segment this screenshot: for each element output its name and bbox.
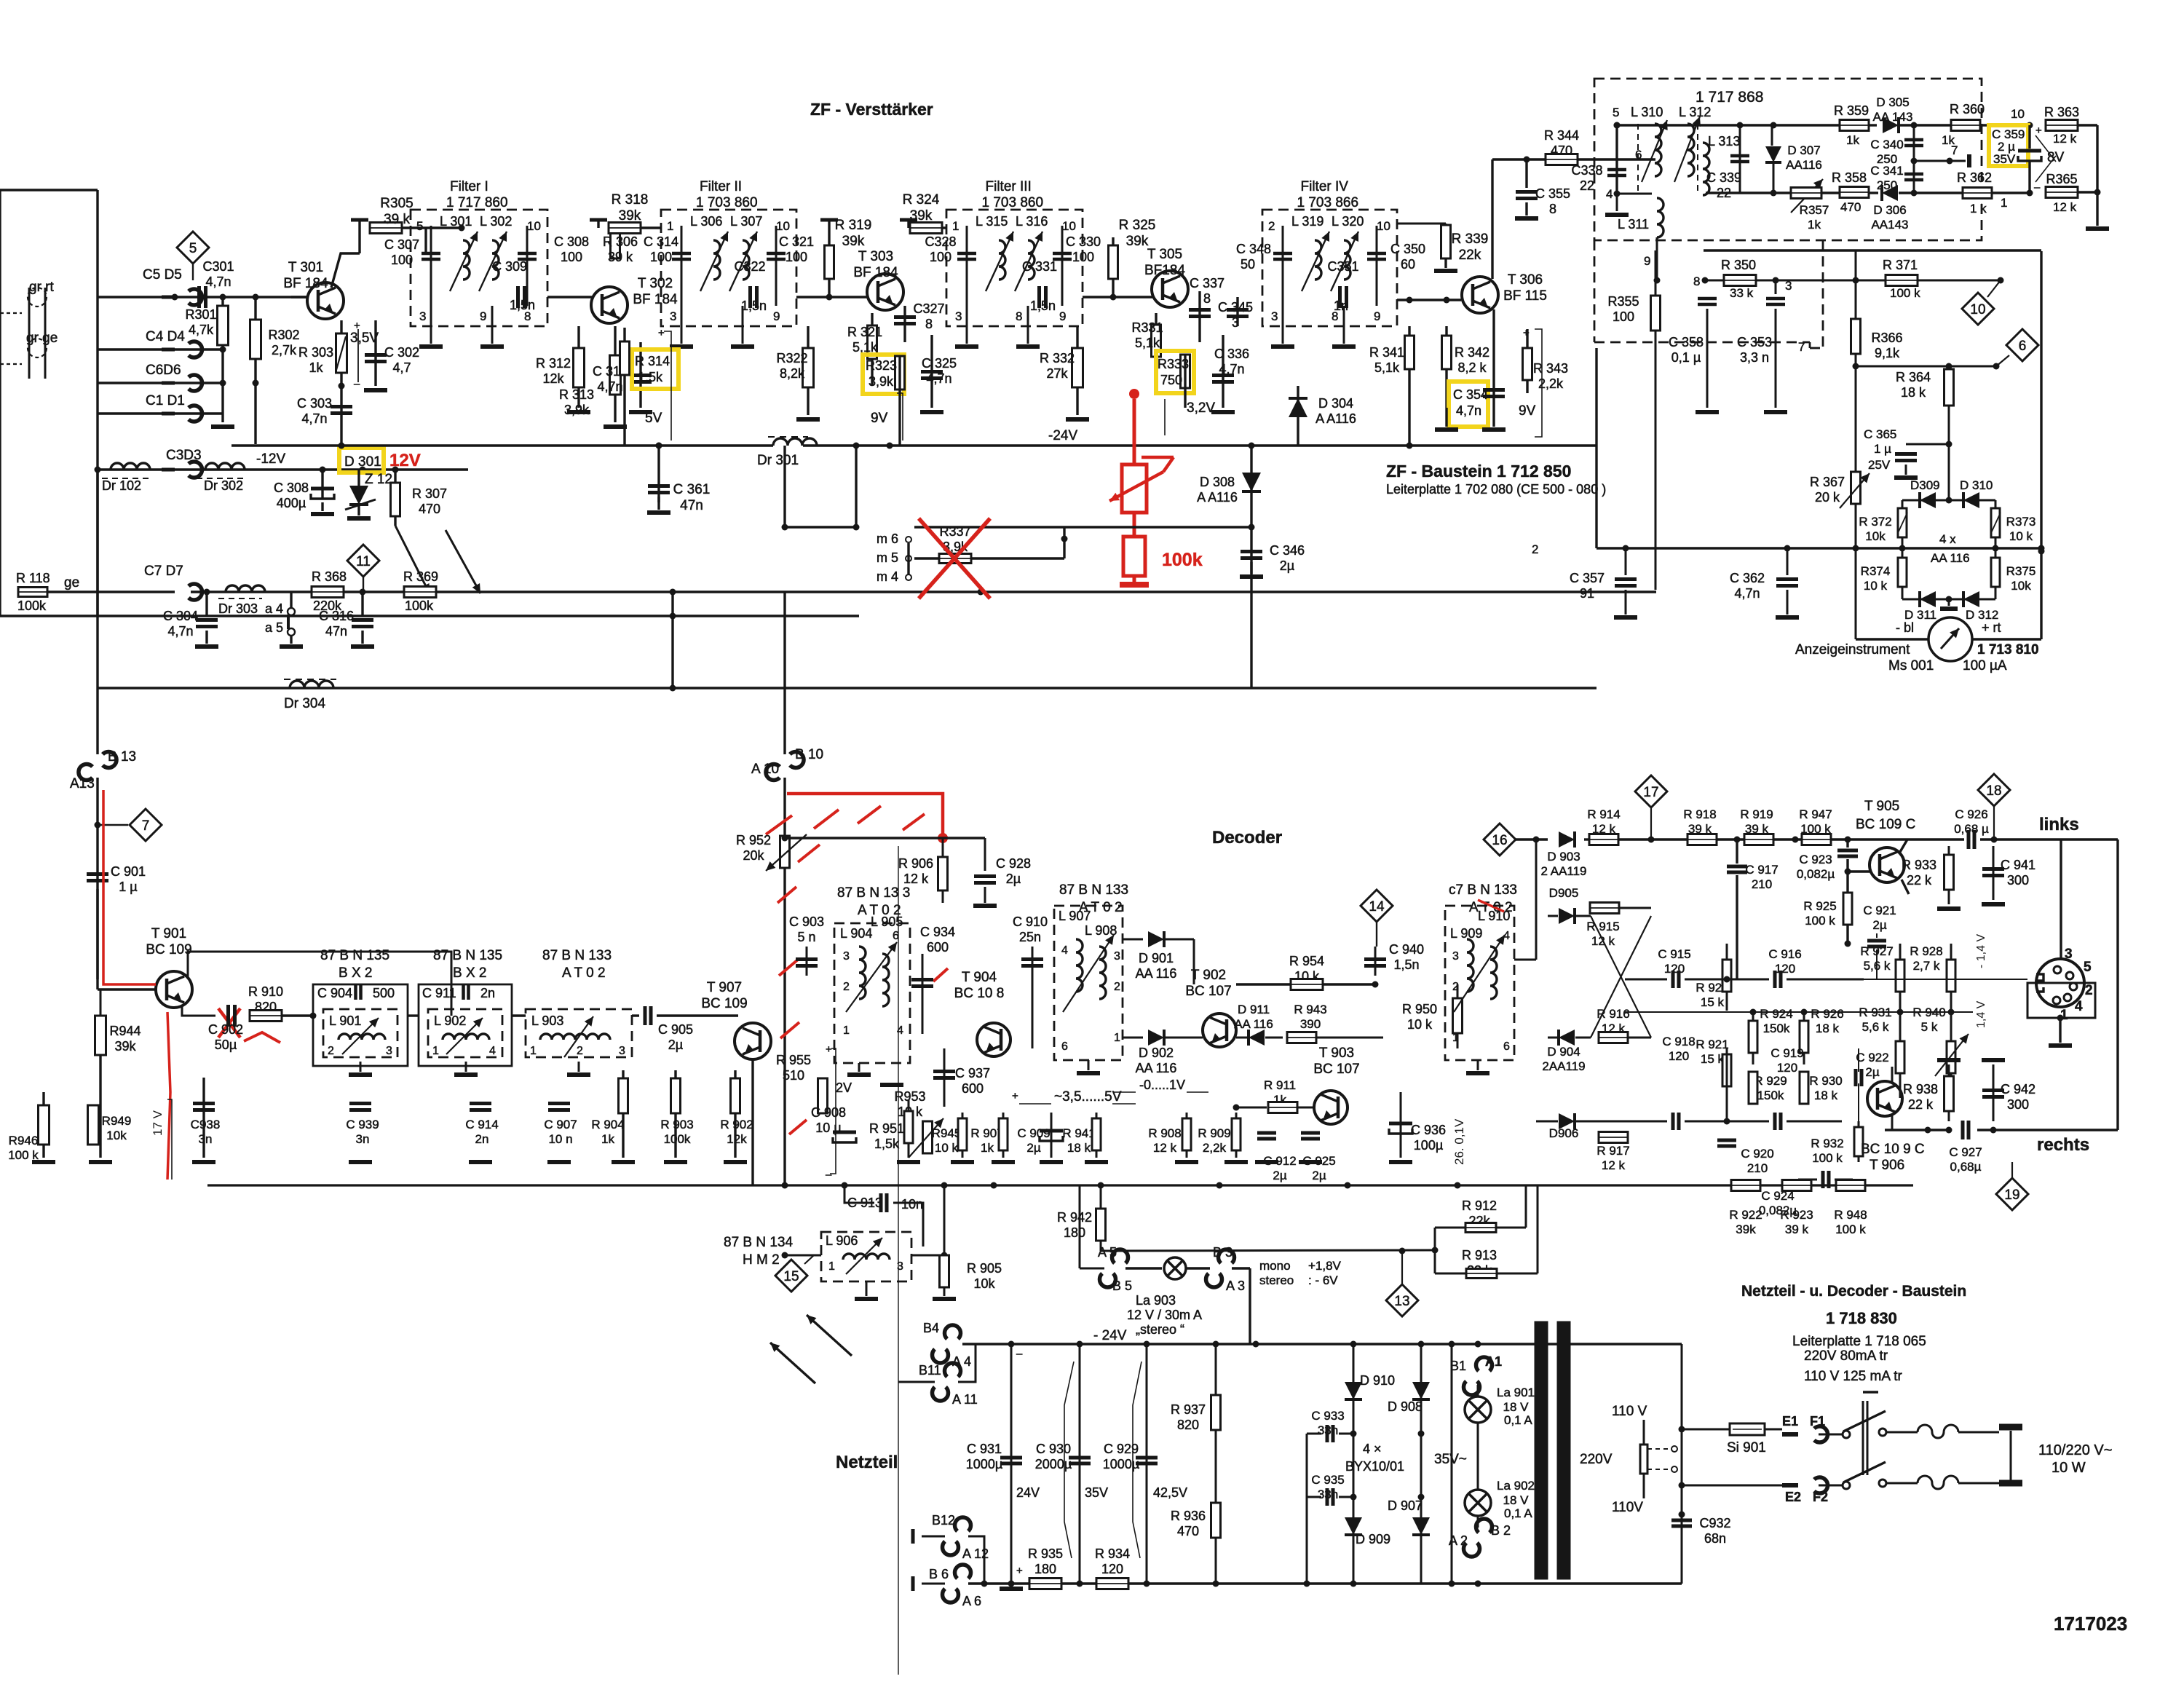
svg-text:7: 7 — [1798, 340, 1805, 354]
svg-text:1: 1 — [667, 219, 673, 233]
svg-text:10: 10 — [1377, 219, 1390, 233]
svg-text:BC 107: BC 107 — [1313, 1062, 1359, 1077]
svg-text:100k: 100k — [664, 1132, 691, 1146]
svg-text:120: 120 — [1101, 1562, 1123, 1576]
svg-text:2: 2 — [2085, 983, 2093, 998]
svg-text:La 902: La 902 — [1497, 1479, 1535, 1493]
svg-text:4 ×: 4 × — [1363, 1442, 1382, 1456]
svg-text:100: 100 — [1072, 250, 1094, 264]
svg-text:Netzteil - u. Decoder - Bauste: Netzteil - u. Decoder - Baustein — [1741, 1283, 1966, 1300]
svg-text:–: – — [354, 378, 360, 390]
svg-text:16: 16 — [1492, 833, 1507, 848]
svg-text:1k: 1k — [1808, 218, 1821, 232]
svg-text:C 307: C 307 — [384, 237, 419, 252]
svg-text:R 319: R 319 — [835, 218, 872, 233]
svg-text:C 909: C 909 — [1017, 1126, 1050, 1140]
svg-text:18 V: 18 V — [1503, 1400, 1530, 1414]
svg-text:: - 6V: : - 6V — [1308, 1273, 1338, 1287]
svg-text:C301: C301 — [202, 259, 234, 274]
svg-text:3,3 n: 3,3 n — [1740, 350, 1769, 365]
svg-text:1: 1 — [2001, 196, 2007, 210]
svg-text:R 342: R 342 — [1455, 345, 1489, 360]
svg-text:14: 14 — [1369, 899, 1385, 914]
svg-text:C 921: C 921 — [1863, 904, 1896, 917]
svg-text:4: 4 — [489, 1045, 496, 1057]
svg-text:+: + — [658, 327, 665, 339]
svg-text:C327: C327 — [913, 301, 944, 316]
svg-text:C322: C322 — [734, 259, 765, 274]
svg-text:R323: R323 — [866, 358, 897, 373]
svg-text:H M 2: H M 2 — [743, 1252, 780, 1268]
svg-text:100: 100 — [1613, 309, 1634, 324]
svg-text:87 B N 13 3: 87 B N 13 3 — [837, 885, 910, 901]
svg-text:10: 10 — [1062, 219, 1076, 233]
svg-text:–: – — [1016, 1348, 1023, 1360]
svg-text:ge: ge — [64, 575, 79, 590]
svg-text:2 AA119: 2 AA119 — [1540, 864, 1586, 878]
svg-text:4,7n: 4,7n — [1456, 403, 1481, 418]
svg-text:2,2k: 2,2k — [1203, 1141, 1227, 1155]
svg-text:R 902: R 902 — [720, 1118, 753, 1131]
svg-text:C 933: C 933 — [1311, 1409, 1344, 1423]
svg-text:7: 7 — [1951, 143, 1958, 157]
svg-text:C 904: C 904 — [317, 986, 352, 1000]
svg-text:L 315: L 315 — [976, 214, 1008, 229]
svg-text:R 314: R 314 — [635, 354, 670, 368]
svg-text:1000µ: 1000µ — [966, 1457, 1002, 1471]
svg-text:C 929: C 929 — [1104, 1442, 1139, 1456]
svg-text:C6D6: C6D6 — [146, 363, 181, 378]
svg-text:R 910: R 910 — [248, 984, 283, 999]
svg-text:10: 10 — [1970, 302, 1985, 317]
svg-text:0,1 A: 0,1 A — [1504, 1413, 1532, 1427]
svg-text:7: 7 — [142, 818, 150, 834]
svg-text:400µ: 400µ — [277, 496, 306, 510]
svg-text:12 k: 12 k — [2053, 200, 2077, 214]
svg-text:390: 390 — [1300, 1017, 1321, 1031]
svg-text:C 910: C 910 — [1013, 914, 1048, 929]
svg-text:AA116: AA116 — [1786, 158, 1822, 172]
svg-text:100 µA: 100 µA — [1963, 658, 2007, 673]
svg-text:10 k: 10 k — [1407, 1017, 1433, 1032]
svg-text:1: 1 — [952, 219, 959, 233]
svg-text:Filter III: Filter III — [986, 179, 1032, 194]
svg-text:0,1 µ: 0,1 µ — [1671, 350, 1701, 365]
svg-text:C 302: C 302 — [384, 345, 419, 360]
svg-text:C 331: C 331 — [1022, 259, 1057, 274]
svg-text:5,6 k: 5,6 k — [1864, 959, 1891, 973]
svg-text:1k: 1k — [309, 360, 323, 375]
svg-text:1,5n: 1,5n — [741, 299, 767, 313]
svg-text:1,5n: 1,5n — [1030, 299, 1056, 313]
svg-text:1000µ: 1000µ — [1103, 1457, 1139, 1471]
svg-text:5 k: 5 k — [1921, 1020, 1938, 1034]
svg-text:C 908: C 908 — [811, 1105, 846, 1120]
svg-text:Dr 303: Dr 303 — [218, 601, 258, 616]
svg-text:R 919: R 919 — [1740, 807, 1773, 821]
svg-text:R 362: R 362 — [1957, 170, 1992, 185]
svg-text:3: 3 — [619, 1045, 625, 1057]
svg-text:C 911: C 911 — [422, 986, 456, 1000]
svg-text:12 k: 12 k — [1153, 1141, 1177, 1155]
svg-text:1 717 868: 1 717 868 — [1696, 89, 1763, 106]
svg-text:R 938: R 938 — [1903, 1082, 1938, 1097]
svg-text:L 307: L 307 — [730, 214, 762, 229]
svg-text:39k: 39k — [1126, 234, 1149, 249]
svg-text:D 307: D 307 — [1787, 143, 1820, 157]
svg-text:3: 3 — [386, 1045, 392, 1057]
svg-text:BC 109: BC 109 — [701, 996, 747, 1011]
svg-text:R 908: R 908 — [1148, 1126, 1181, 1140]
svg-text:C 355: C 355 — [1535, 186, 1570, 201]
svg-text:1: 1 — [828, 1260, 835, 1273]
svg-text:+: + — [354, 320, 360, 332]
svg-text:8: 8 — [1203, 291, 1211, 306]
svg-text:3: 3 — [1452, 950, 1459, 963]
svg-text:9V: 9V — [1519, 403, 1536, 419]
svg-text:C 907: C 907 — [544, 1118, 577, 1131]
svg-text:D 901: D 901 — [1139, 951, 1174, 965]
svg-text:C 348: C 348 — [1236, 242, 1271, 256]
svg-text:R 918: R 918 — [1683, 807, 1716, 821]
svg-text:AA 116: AA 116 — [1136, 1061, 1177, 1075]
svg-text:-0.....1V: -0.....1V — [1139, 1078, 1185, 1092]
svg-text:m 5: m 5 — [877, 550, 898, 565]
svg-text:-24V: -24V — [1048, 428, 1077, 443]
svg-text:100 k: 100 k — [1835, 1222, 1866, 1236]
svg-text:D 304: D 304 — [1318, 396, 1353, 411]
svg-text:18: 18 — [1986, 783, 2001, 799]
svg-text:R 948: R 948 — [1834, 1208, 1867, 1222]
svg-text:D 904: D 904 — [1547, 1045, 1580, 1059]
svg-text:110V: 110V — [1612, 1500, 1643, 1515]
svg-text:L 306: L 306 — [690, 214, 722, 229]
svg-text:C 365: C 365 — [1864, 427, 1896, 441]
svg-text:R 905: R 905 — [967, 1261, 1002, 1276]
svg-text:10 W: 10 W — [2052, 1460, 2086, 1476]
svg-text:- 24V: - 24V — [1093, 1328, 1127, 1343]
svg-text:BC 107: BC 107 — [1185, 984, 1231, 999]
svg-text:2: 2 — [577, 1045, 583, 1057]
svg-text:+: + — [1012, 1090, 1018, 1102]
svg-text:C5 D5: C5 D5 — [143, 267, 182, 283]
svg-text:La 901: La 901 — [1497, 1386, 1535, 1399]
svg-text:150k: 150k — [1763, 1022, 1790, 1035]
svg-text:R 360: R 360 — [1950, 102, 1985, 116]
svg-text:4 x: 4 x — [1939, 532, 1956, 546]
svg-text:A 10: A 10 — [751, 762, 779, 777]
svg-text:50: 50 — [1241, 257, 1255, 272]
svg-text:22 k: 22 k — [1907, 873, 1932, 888]
svg-text:10n: 10n — [901, 1197, 923, 1212]
svg-text:Dr 301: Dr 301 — [757, 453, 799, 468]
svg-text:B 10: B 10 — [795, 747, 823, 762]
svg-text:1k: 1k — [1846, 133, 1859, 147]
svg-text:R 307: R 307 — [412, 486, 447, 501]
svg-text:a 4: a 4 — [265, 601, 283, 616]
svg-text:2V: 2V — [836, 1080, 852, 1095]
svg-text:10 k: 10 k — [1864, 579, 1888, 593]
svg-text:C 309: C 309 — [492, 259, 527, 274]
svg-text:R 913: R 913 — [1462, 1248, 1497, 1263]
svg-text:R 364: R 364 — [1896, 370, 1931, 384]
svg-text:5: 5 — [189, 241, 197, 256]
svg-text:C932: C932 — [1699, 1516, 1730, 1530]
svg-text:100: 100 — [930, 250, 951, 264]
svg-text:L 902: L 902 — [434, 1014, 466, 1028]
svg-text:L 310: L 310 — [1631, 105, 1663, 119]
svg-text:2µ: 2µ — [1273, 1169, 1286, 1182]
svg-text:1 k: 1 k — [1970, 202, 1987, 216]
svg-text:A 5: A 5 — [1098, 1245, 1117, 1260]
svg-text:10k: 10k — [2011, 579, 2031, 593]
svg-text:A 2: A 2 — [1449, 1533, 1468, 1548]
svg-text:4: 4 — [1061, 944, 1068, 957]
svg-text:R944: R944 — [109, 1024, 141, 1038]
svg-text:3: 3 — [1271, 309, 1278, 323]
svg-text:2n: 2n — [475, 1132, 489, 1146]
svg-text:R365: R365 — [2046, 172, 2077, 186]
svg-text:gr ge: gr ge — [26, 331, 58, 346]
svg-text:BC 109 C: BC 109 C — [1856, 817, 1915, 832]
svg-text:R 933: R 933 — [1902, 858, 1936, 872]
svg-text:10: 10 — [527, 219, 541, 233]
svg-text:R 906: R 906 — [898, 856, 933, 871]
svg-text:C 935: C 935 — [1311, 1473, 1344, 1487]
svg-text:R 942: R 942 — [1057, 1210, 1092, 1225]
svg-text:B12: B12 — [932, 1513, 955, 1528]
svg-text:D 910: D 910 — [1360, 1373, 1395, 1388]
svg-text:1717023: 1717023 — [2054, 1613, 2127, 1635]
svg-text:R 318: R 318 — [612, 192, 649, 208]
svg-text:1: 1 — [1452, 1032, 1459, 1044]
svg-text:B 13: B 13 — [108, 749, 136, 765]
svg-text:2µ: 2µ — [668, 1038, 683, 1052]
svg-text:8: 8 — [1549, 202, 1556, 216]
svg-text:Si 901: Si 901 — [1727, 1440, 1766, 1455]
svg-text:10k: 10k — [1865, 529, 1886, 543]
svg-text:2,7 k: 2,7 k — [1913, 959, 1940, 973]
svg-text:22 k: 22 k — [1908, 1097, 1934, 1112]
svg-text:1: 1 — [1114, 1032, 1120, 1044]
svg-text:600: 600 — [927, 940, 949, 955]
svg-text:L 320: L 320 — [1332, 214, 1364, 229]
svg-text:4,7n: 4,7n — [1219, 362, 1244, 376]
svg-text:R 932: R 932 — [1811, 1137, 1843, 1150]
svg-text:T 302: T 302 — [638, 276, 673, 291]
svg-text:R337: R337 — [939, 524, 970, 539]
svg-text:9: 9 — [1644, 254, 1650, 268]
svg-text:R 926: R 926 — [1811, 1007, 1843, 1021]
svg-text:D 911: D 911 — [1238, 1003, 1270, 1016]
svg-text:500: 500 — [373, 986, 395, 1000]
svg-text:100 k: 100 k — [1812, 1151, 1843, 1165]
svg-text:T 301: T 301 — [288, 260, 323, 275]
svg-text:C 350: C 350 — [1390, 242, 1425, 256]
svg-text:C 916: C 916 — [1768, 947, 1801, 961]
svg-text:BF 115: BF 115 — [1503, 288, 1547, 304]
svg-text:39k: 39k — [1736, 1222, 1756, 1236]
svg-text:R 950: R 950 — [1402, 1002, 1437, 1016]
svg-text:42,5V: 42,5V — [1153, 1485, 1187, 1500]
svg-text:2µ: 2µ — [1280, 558, 1294, 573]
svg-text:22: 22 — [1580, 178, 1594, 193]
svg-text:18 k: 18 k — [1067, 1141, 1091, 1155]
svg-text:100: 100 — [391, 253, 413, 267]
svg-text:B X 2: B X 2 — [339, 965, 372, 981]
svg-text:12 k: 12 k — [903, 872, 929, 886]
svg-text:87 B N 135: 87 B N 135 — [433, 948, 502, 963]
svg-text:110/220 V~: 110/220 V~ — [2038, 1442, 2112, 1458]
svg-text:4: 4 — [1606, 187, 1613, 201]
svg-text:C 308: C 308 — [554, 234, 589, 249]
svg-text:R 341: R 341 — [1369, 345, 1404, 360]
svg-text:3n: 3n — [356, 1132, 370, 1146]
svg-text:C 330: C 330 — [1066, 234, 1101, 249]
svg-text:C 336: C 336 — [1214, 347, 1249, 361]
svg-text:100k: 100k — [17, 598, 47, 613]
svg-text:4,7k: 4,7k — [189, 323, 214, 337]
svg-text:300: 300 — [2007, 1097, 2029, 1112]
svg-text:BC 10 9 C: BC 10 9 C — [1861, 1142, 1925, 1157]
svg-text:3: 3 — [843, 950, 850, 963]
svg-text:T 902: T 902 — [1191, 968, 1226, 983]
svg-text:rechts: rechts — [2037, 1135, 2089, 1155]
svg-text:T 303: T 303 — [858, 249, 893, 264]
svg-text:2n: 2n — [480, 986, 495, 1000]
svg-text:12k: 12k — [727, 1132, 747, 1146]
svg-text:18 k: 18 k — [1814, 1089, 1838, 1102]
svg-text:- bl: - bl — [1896, 620, 1914, 635]
svg-text:D 306: D 306 — [1873, 203, 1906, 217]
svg-text:D 908: D 908 — [1388, 1399, 1423, 1414]
svg-text:22k: 22k — [1459, 248, 1481, 263]
svg-text:C338: C338 — [1571, 163, 1602, 178]
svg-text:R355: R355 — [1607, 294, 1639, 309]
svg-text:C 941: C 941 — [2001, 858, 2035, 872]
svg-text:T 904: T 904 — [962, 970, 997, 985]
svg-text:C 358: C 358 — [1669, 335, 1704, 349]
svg-text:C 914: C 914 — [465, 1118, 498, 1131]
svg-text:C 936: C 936 — [1411, 1123, 1446, 1137]
svg-text:8: 8 — [925, 317, 933, 331]
svg-text:8,2 k: 8,2 k — [1457, 360, 1487, 375]
svg-text:27k: 27k — [1046, 366, 1068, 381]
svg-text:9V: 9V — [871, 411, 888, 426]
svg-text:39k: 39k — [842, 234, 865, 249]
svg-text:18 V: 18 V — [1503, 1493, 1530, 1507]
svg-text:m 6: m 6 — [877, 532, 898, 546]
svg-text:R945: R945 — [932, 1126, 962, 1140]
svg-text:180: 180 — [1034, 1562, 1056, 1576]
svg-text:2µ: 2µ — [1865, 1065, 1879, 1079]
svg-text:3: 3 — [670, 309, 676, 323]
svg-text:C 926: C 926 — [1955, 807, 1987, 821]
svg-text:9,1k: 9,1k — [1875, 346, 1900, 360]
svg-text:R 935: R 935 — [1028, 1546, 1063, 1561]
svg-text:25V: 25V — [1868, 458, 1891, 472]
svg-text:A 6: A 6 — [962, 1594, 981, 1608]
svg-text:C 346: C 346 — [1270, 543, 1305, 558]
svg-text:R 911: R 911 — [1264, 1078, 1296, 1092]
svg-text:A 11: A 11 — [952, 1392, 978, 1407]
svg-text:D309: D309 — [1910, 478, 1940, 492]
svg-text:C 339: C 339 — [1706, 170, 1741, 185]
svg-text:A 3: A 3 — [1226, 1279, 1245, 1293]
svg-text:39 k: 39 k — [1785, 1222, 1809, 1236]
svg-text:L 907: L 907 — [1059, 909, 1091, 923]
svg-text:2µ: 2µ — [1312, 1169, 1326, 1182]
svg-text:+1,8V: +1,8V — [1308, 1259, 1342, 1273]
svg-text:C938: C938 — [191, 1118, 221, 1131]
svg-text:D 301: D 301 — [344, 454, 381, 470]
svg-text:R953: R953 — [894, 1089, 925, 1104]
svg-text:links: links — [2039, 815, 2079, 834]
svg-text:C 905: C 905 — [658, 1022, 693, 1037]
svg-text:R 367: R 367 — [1810, 475, 1845, 489]
svg-text:C351: C351 — [1327, 259, 1358, 274]
svg-text:87 B N 134: 87 B N 134 — [724, 1235, 793, 1250]
svg-text:R 955: R 955 — [776, 1053, 811, 1067]
svg-text:4: 4 — [2075, 999, 2083, 1014]
svg-text:18 k: 18 k — [1816, 1022, 1840, 1035]
svg-text:+ rt: + rt — [1982, 620, 2001, 635]
svg-text:A1: A1 — [1485, 1354, 1502, 1369]
svg-text:A T 0 2: A T 0 2 — [562, 965, 606, 981]
svg-text:T 306: T 306 — [1508, 272, 1543, 288]
svg-text:R 368: R 368 — [312, 569, 347, 584]
svg-text:BYX10/01: BYX10/01 — [1345, 1459, 1404, 1474]
svg-text:Filter I: Filter I — [450, 179, 488, 194]
svg-text:Ms 001: Ms 001 — [1888, 658, 1934, 673]
svg-text:R 927: R 927 — [1860, 944, 1893, 958]
svg-text:B 6: B 6 — [929, 1567, 949, 1581]
svg-text:La 903: La 903 — [1136, 1293, 1176, 1308]
svg-text:AA 116: AA 116 — [1931, 551, 1970, 565]
svg-text:L 901: L 901 — [329, 1014, 361, 1028]
svg-text:4: 4 — [1503, 930, 1510, 942]
svg-text:L 903: L 903 — [531, 1014, 563, 1028]
svg-text:0,1 A: 0,1 A — [1504, 1506, 1532, 1520]
svg-text:A A116: A A116 — [1315, 411, 1356, 426]
svg-text:C 934: C 934 — [920, 925, 955, 939]
svg-text:9: 9 — [1374, 309, 1380, 323]
svg-text:3: 3 — [1232, 315, 1239, 330]
svg-text:3,2V: 3,2V — [1187, 400, 1215, 416]
svg-text:B 5: B 5 — [1112, 1279, 1132, 1293]
svg-text:C 920: C 920 — [1741, 1147, 1773, 1161]
svg-text:R 325: R 325 — [1119, 218, 1156, 233]
svg-text:6: 6 — [1503, 1040, 1510, 1053]
svg-text:D 903: D 903 — [1547, 850, 1580, 864]
svg-text:Anzeigeinstrument: Anzeigeinstrument — [1795, 642, 1910, 657]
svg-text:5: 5 — [416, 219, 423, 233]
svg-text:Filter II: Filter II — [700, 179, 742, 194]
svg-text:470: 470 — [1840, 200, 1861, 214]
svg-text:R 912: R 912 — [1462, 1198, 1497, 1213]
svg-text:BF 184: BF 184 — [853, 265, 898, 280]
svg-text:R 321: R 321 — [847, 325, 882, 339]
svg-text:210: 210 — [1752, 877, 1772, 891]
svg-text:Dr 302: Dr 302 — [204, 478, 243, 493]
svg-text:1,5k: 1,5k — [874, 1137, 900, 1151]
svg-text:L 313: L 313 — [1708, 134, 1740, 149]
svg-text:+: + — [1016, 1565, 1023, 1577]
svg-text:10 k: 10 k — [935, 1141, 959, 1155]
svg-text:R322: R322 — [776, 351, 807, 366]
svg-text:2: 2 — [328, 1045, 334, 1057]
svg-text:R 924: R 924 — [1760, 1007, 1792, 1021]
